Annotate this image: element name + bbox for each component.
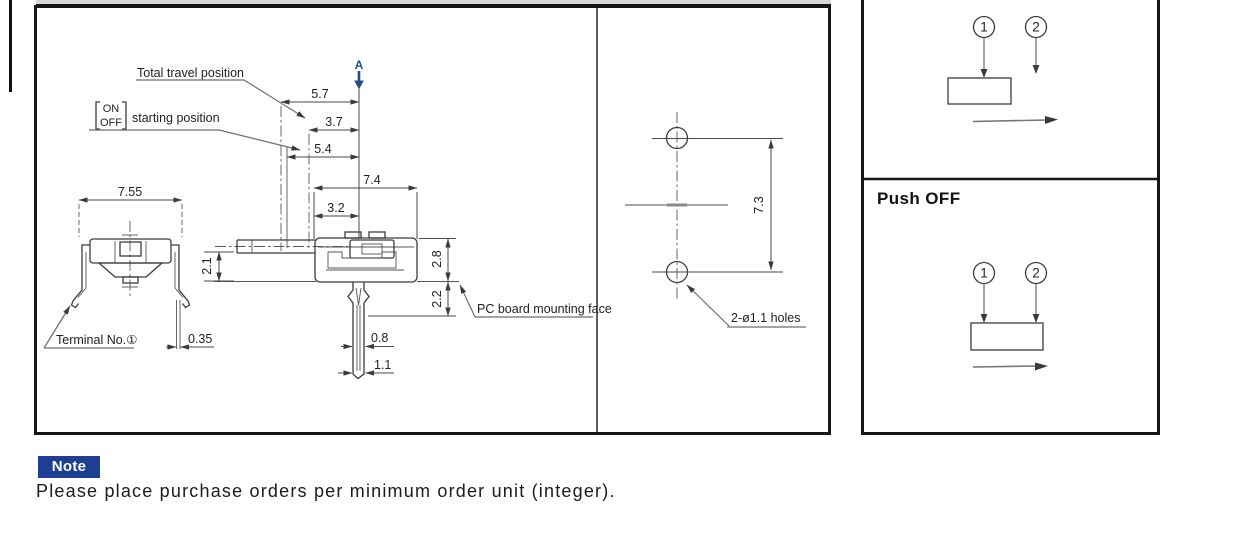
dimension-drawing: Total travel position ON OFF starting po… [37,8,828,432]
terminal-1-number: 1 [980,20,988,35]
terminal-label: Terminal No.① [44,306,137,348]
terminal-1-number: 1 [980,266,988,281]
circuit-lower: 1 2 [971,263,1048,371]
dim-7-55: 7.55 [118,185,142,199]
page-edge-artifact [9,0,12,92]
dim-3-7: 3.7 [325,115,342,129]
holes-label: 2-ø1.1 holes [731,311,800,325]
circuit-upper: 1 2 [948,17,1058,125]
dim-7-4: 7.4 [363,173,380,187]
terminal-2-number: 2 [1032,266,1040,281]
terminal-2-number: 2 [1032,20,1040,35]
dim-0-35: 0.35 [188,332,212,346]
terminal-no-text: Terminal No.① [56,333,137,347]
dim-0-35-group: 0.35 [166,332,214,347]
pin-dimensions: 0.8 1.1 [338,331,394,373]
movable-contact [971,323,1043,350]
dim-2-8-2-2-group: 2.8 2.2 [368,239,456,317]
dim-2-1: 2.1 [200,257,214,274]
dim-7-3: 7.3 [752,196,766,213]
on-text: ON [103,103,120,115]
dim-1-1: 1.1 [374,358,391,372]
note-badge: Note [38,456,100,478]
off-text: OFF [100,117,122,129]
side-view [214,232,459,379]
note-text: Please place purchase orders per minimum… [36,481,616,502]
front-view: 7.55 [72,185,190,349]
on-off-starting-label: ON OFF starting position [89,102,300,150]
dim-5-7: 5.7 [311,87,328,101]
pc-board-label: PC board mounting face [460,285,612,317]
dim-5-4: 5.4 [314,142,331,156]
travel-direction-arrow-icon [1035,363,1048,371]
circuit-diagrams: 1 2 Push OFF 1 2 [864,0,1157,431]
dim-3-2: 3.2 [327,201,344,215]
pc-board-text: PC board mounting face [477,302,612,316]
mounting-hole-pattern: 7.3 2-ø1.1 holes [625,112,806,327]
dim-0-8: 0.8 [371,331,388,345]
movable-contact [948,78,1011,104]
dim-2-2: 2.2 [430,290,444,307]
total-travel-text: Total travel position [137,66,244,80]
travel-dimensions: 5.7 3.7 5.4 7.4 3.2 [281,84,417,251]
terminal-2-arrow-icon [1033,314,1040,323]
dim-2-8: 2.8 [430,250,444,267]
terminal-2-arrow-icon [1033,65,1040,74]
travel-direction-arrow-icon [1045,116,1058,124]
section-a-text: A [355,58,364,72]
terminal-1-arrow-icon [981,69,988,78]
dim-2-1-group: 2.1 [200,252,234,281]
starting-position-text: starting position [132,111,220,125]
push-off-heading: Push OFF [877,189,960,208]
terminal-1-arrow-icon [981,314,988,323]
